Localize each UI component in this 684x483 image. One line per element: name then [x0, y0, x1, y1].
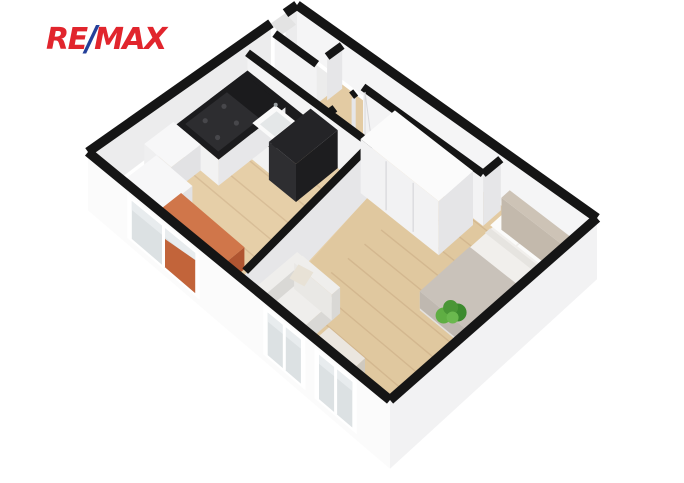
page: RE/MAX [0, 0, 684, 483]
floorplan-3d-render [0, 0, 684, 483]
cooktop-burner-icon [203, 118, 208, 123]
logo-text-max: MAX [94, 22, 166, 57]
logo-slash-icon: / [85, 19, 95, 59]
logo-text-re: RE [46, 22, 87, 57]
plant-icon [447, 312, 459, 324]
wall-top-interior [352, 93, 356, 96]
cooktop-burner-icon [234, 120, 239, 125]
cooktop-burner-icon [221, 104, 226, 109]
faucet-icon [274, 103, 278, 107]
remax-logo: RE/MAX [46, 22, 166, 57]
cooktop-burner-icon [215, 135, 220, 140]
